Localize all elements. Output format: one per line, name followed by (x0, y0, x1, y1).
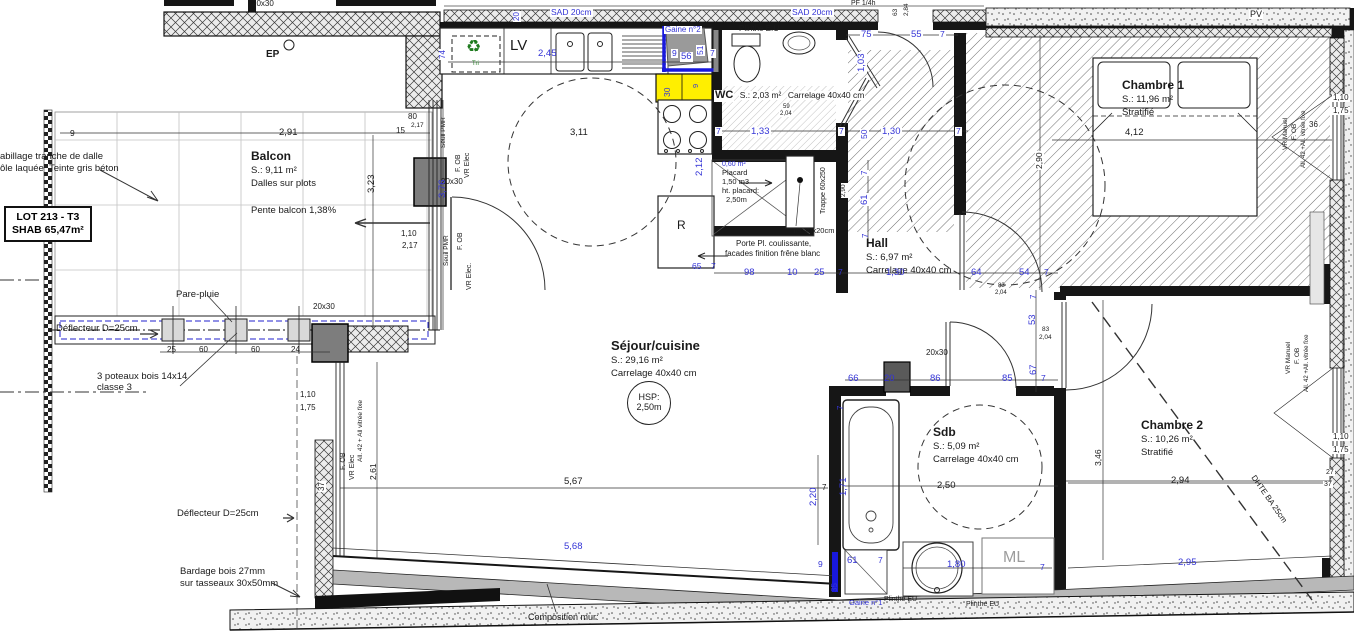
room-label-balcon: Balcon S.: 9,11 m² Dalles sur plots (251, 150, 316, 189)
label-window: VR Elec (464, 153, 471, 178)
dimension-label: 7 (709, 49, 716, 58)
label-window: F. OB (1295, 348, 1302, 364)
dimension-label: 2,12 (695, 158, 705, 177)
dimension-label: 9 (70, 129, 75, 138)
room-label-placard: 0,60 m² Placard 1,50 m3 ht. placard: 2,5… (722, 161, 759, 205)
label-window: F. OB (457, 232, 464, 250)
dimension-label: 61 (860, 193, 870, 206)
dimension-label: 60 (199, 346, 208, 354)
dimension-label: 37 (1323, 481, 1333, 488)
dimension-label: 98 (744, 268, 755, 278)
dimension-label: 7 (1040, 563, 1045, 572)
label-gaine-1: Gaine n°1 (849, 599, 882, 607)
dimension-label: 60 (251, 346, 260, 354)
post-20x30 (312, 324, 348, 362)
label-post-size: 20x30 (926, 349, 948, 357)
label-pf14h: PF 1/4h (851, 0, 876, 7)
dimension-label: 25 (167, 346, 176, 354)
dimension-label: 2,91 (279, 128, 298, 138)
dimension-label: 7 (939, 30, 946, 39)
label-window: VR Manuel (1286, 342, 1293, 374)
dimension-label: 83 (998, 283, 1005, 289)
dimension-label: 1,03 (857, 53, 867, 74)
dimension-label: 1,75 (1332, 107, 1350, 115)
dimension-label: 25 (814, 268, 825, 278)
dimension-label: 65 (692, 262, 701, 271)
dimension-label: 7 (1041, 374, 1046, 383)
label-plinthe-eu-2: Plinthe EU (884, 596, 917, 603)
dimension-label: 1,10 (1332, 433, 1350, 441)
note-composition-mur: Composition mur: (528, 613, 599, 622)
duct-shaft (786, 156, 814, 228)
note-cladding-1: abillage tranche de dalle (0, 152, 103, 162)
dimension-label: 74 (439, 49, 447, 60)
note-poteaux-2: classe 3 (97, 383, 132, 393)
dimension-label: 7 (861, 170, 869, 176)
lot-title-box: LOT 213 - T3 SHAB 65,47m² (4, 206, 92, 242)
room-label-sejour: Séjour/cuisine S.: 29,16 m² Carrelage 40… (611, 339, 700, 379)
dimension-label: 5,68 (564, 542, 583, 552)
dimension-label: 7 (715, 127, 722, 136)
dimension-label: 15 (396, 127, 405, 135)
dimension-label: 1,10 (300, 391, 316, 399)
dimension-label: 7 (711, 262, 716, 271)
dimension-label: 9 (818, 560, 823, 569)
dimension-label: 59 (782, 104, 791, 110)
dimension-label: 3,76 (438, 180, 448, 199)
dimension-label: 30 (663, 88, 672, 97)
sink-basin (588, 33, 612, 71)
dimension-label: 2,17 (402, 242, 418, 250)
room-label-chambre2: Chambre 2 S.: 10,26 m² Stratifié (1141, 419, 1203, 458)
label-window: Seuil PMR (441, 117, 448, 148)
dimension-label: 3,11 (570, 128, 588, 138)
dimension-label: 1,71 (839, 478, 849, 497)
dimension-label: 2,95 (1178, 558, 1197, 568)
dimension-label: 2,50 (937, 481, 956, 491)
dimension-label: 63 (893, 9, 900, 16)
label-gaine-2: Gaine n°2 (664, 26, 702, 34)
dimension-label: 75 (860, 30, 873, 40)
toilet-tank (732, 34, 760, 46)
dimension-label: 7 (838, 127, 845, 136)
dimension-label: 5,67 (564, 477, 583, 487)
dimension-label: 1,30 (886, 268, 905, 278)
dimension-label: 55 (910, 30, 923, 40)
dimension-label: 80 (408, 113, 417, 121)
dimension-label: 1,10 (1332, 94, 1350, 102)
dimension-label: 7 (837, 406, 845, 410)
lot-number: LOT 213 - T3 (12, 211, 84, 224)
dimension-label: 54 (1019, 268, 1030, 278)
dimension-label: 1,80 (947, 560, 966, 570)
dimension-label: 2,17 (411, 123, 424, 130)
dimension-label: 7 (838, 268, 843, 277)
dimension-label: 37 (318, 481, 326, 492)
label-window: F. OB (1292, 124, 1299, 140)
dimension-label: 9 (671, 49, 678, 58)
balcony-tiles (55, 112, 432, 318)
note-deflecteur-1: Déflecteur D=25cm (56, 324, 138, 334)
dimension-label: 7 (878, 556, 883, 565)
floor-plan: LOT 213 - T3 SHAB 65,47m² Balcon S.: 9,1… (0, 0, 1354, 631)
fridge (658, 196, 714, 268)
dimension-label: 86 (930, 374, 941, 384)
label-tri: Tri (472, 61, 479, 67)
ceiling-height-badge: HSP: 2,50m (627, 381, 671, 425)
dimension-label: 2,61 (369, 463, 378, 480)
sink-basin (556, 33, 584, 71)
radiator (1310, 212, 1324, 304)
dimension-label: 36 (1308, 121, 1319, 129)
label-ml: ML (1003, 550, 1025, 566)
label-post-size: 20x30 (252, 0, 274, 8)
lot-area: SHAB 65,47m² (12, 224, 84, 237)
label-trappe: Trappe 60x250 (820, 166, 827, 215)
dimension-label: 83 (1042, 327, 1049, 334)
label-fridge: R (677, 219, 686, 231)
label-window: Seuil PMR (444, 235, 451, 266)
label-plinthe-eu-1: Plinthe E.U (739, 25, 779, 33)
label-ep: EP (266, 50, 279, 60)
note-poteaux-1: 3 poteaux bois 14x14 (97, 372, 187, 382)
dimension-label: 7 (822, 484, 826, 492)
dimension-label: 7 (1030, 295, 1038, 299)
dimension-label: 20 (884, 374, 895, 384)
dimension-label: 1,30 (881, 127, 902, 137)
dimension-label: 50 (860, 129, 869, 140)
dimension-label: 2,90 (1035, 151, 1044, 170)
dimension-label: 7 (862, 234, 870, 238)
label-lv: LV (510, 38, 527, 53)
bathtub (843, 400, 899, 550)
dimension-label: 7 (1044, 268, 1049, 277)
dimension-label: 3,23 (367, 175, 377, 194)
dimension-label: 2,84 (904, 3, 911, 16)
label-sad-2: SAD 20cm (791, 8, 834, 17)
dimension-label: 35 (831, 583, 839, 592)
label-window: All. 42 + All vitrée fixe (358, 400, 365, 462)
dimension-label: 67 (1029, 364, 1039, 375)
note-porte-placard-1: Porte Pl. coulissante, (736, 240, 811, 248)
dimension-label: 7 (955, 127, 962, 136)
dimension-label: 61 (847, 556, 858, 566)
dimension-label: 27 (1325, 469, 1335, 476)
note-bardage-2: sur tasseaux 30x50mm (180, 579, 278, 589)
label-int-duct: int.10x20cm (794, 227, 834, 235)
dimension-label: 20 (513, 11, 521, 22)
dimension-label: 2,04 (779, 111, 793, 117)
dimension-label: 2,45 (538, 49, 557, 59)
room-label-hall: Hall S.: 6,97 m² Carrelage 40x40 cm (866, 237, 952, 276)
dimension-label: 2,20 (809, 488, 819, 507)
ep-drain-icon (284, 40, 294, 50)
dimension-label: 3,46 (1094, 449, 1103, 466)
dimension-label: 2,90 (841, 183, 848, 198)
label-window: VR Elec (349, 455, 356, 480)
label-window: VR Elec. (466, 263, 473, 290)
dimension-label: 4,12 (1125, 128, 1144, 138)
dimension-label: 85 (1002, 374, 1013, 384)
dimension-label: 51 (696, 45, 705, 56)
note-pare-pluie: Pare-pluie (176, 290, 219, 300)
label-window: F. OB (340, 452, 347, 470)
dimension-label: 1,75 (300, 404, 316, 412)
dimension-label: 10 (787, 268, 798, 278)
dimension-label: 56 (680, 52, 693, 62)
label-window: All. 42 +All. vitrée fixe (1304, 334, 1310, 392)
dimension-label: 1,10 (401, 230, 417, 238)
recycle-icon: ♻ (466, 38, 481, 55)
dimension-label: 1,33 (750, 127, 771, 137)
dimension-label: 24 (291, 346, 300, 354)
label-sad-1: SAD 20cm (550, 8, 593, 17)
note-cladding-2: ôle laquée Teinte gris béton (0, 164, 119, 174)
note-deflecteur-2: Déflecteur D=25cm (177, 509, 259, 519)
label-plinthe-eu-3: Plinthe EU (966, 601, 999, 608)
dimension-label: 66 (848, 374, 859, 384)
balcony-rail (44, 40, 440, 492)
room-label-wc: WC S.: 2,03 m² Carrelage 40x40 cm (714, 86, 865, 103)
toilet-bowl (734, 46, 760, 82)
dimension-label: 1,75 (1332, 446, 1350, 454)
slope-arrow (355, 219, 430, 227)
balcony-slope-note: Pente balcon 1,38% (251, 205, 336, 216)
dimension-label: 53 (1028, 314, 1038, 325)
note-bardage-1: Bardage bois 27mm (180, 567, 265, 577)
dimension-label: 64 (971, 268, 982, 278)
room-label-sdb: Sdb S.: 5,09 m² Carrelage 40x40 cm (933, 426, 1019, 465)
note-porte-placard-2: facades finition frêne blanc (725, 250, 820, 258)
room-label-chambre1: Chambre 1 S.: 11,96 m² Stratifié (1122, 79, 1184, 118)
label-pv: PV (1249, 10, 1263, 19)
label-window: F. OB (455, 154, 462, 172)
dimension-label: 2,94 (1171, 476, 1190, 486)
label-window: All. 42 +All. vitrée fixe (1301, 110, 1307, 168)
dimension-label: 2,04 (1039, 335, 1052, 342)
dimension-label: 9 (692, 84, 700, 88)
label-window: VR Manuel (1283, 118, 1290, 150)
label-post-size: 20x30 (313, 303, 335, 311)
dimension-label: 2,04 (995, 290, 1007, 296)
